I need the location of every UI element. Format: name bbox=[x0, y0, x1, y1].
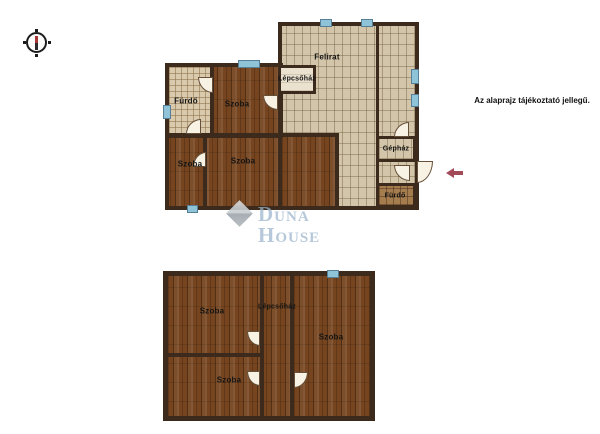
entrance-arrow-icon bbox=[446, 168, 463, 178]
window-marker bbox=[238, 60, 260, 68]
upper-left-bottom-walls bbox=[165, 133, 339, 210]
wall-right-strip bbox=[376, 26, 379, 207]
room-label-attic: Felirat bbox=[314, 53, 339, 62]
room-label-top-left: Szoba bbox=[200, 307, 225, 316]
disclaimer-text: Az alaprajz tájékoztató jellegű. bbox=[460, 96, 600, 105]
compass-tick-south bbox=[35, 54, 38, 57]
room-label-staircase: Lépcsőház bbox=[258, 304, 296, 311]
lower-outer-walls bbox=[163, 271, 375, 421]
compass-tick-north bbox=[35, 29, 38, 32]
watermark: Duna House bbox=[226, 200, 376, 230]
watermark-brand-text: Duna House bbox=[258, 204, 376, 246]
upper-floor-plan: Felirat Lépcsőház Fürdő Szoba Szoba Szob… bbox=[165, 15, 421, 215]
room-label-room-bottom-left: Szoba bbox=[178, 160, 203, 169]
compass-needle-south bbox=[35, 43, 38, 50]
entrance-door-swing bbox=[417, 161, 433, 183]
room-label-staircase: Lépcsőház bbox=[278, 76, 316, 83]
room-label-room-bottom-main: Szoba bbox=[231, 157, 256, 166]
compass-needle-north bbox=[35, 36, 38, 43]
duna-house-logo-icon bbox=[230, 204, 249, 223]
window-marker bbox=[361, 19, 373, 27]
floor-plan-page: { "disclaimer": "Az alaprajz tájékoztató… bbox=[0, 0, 600, 434]
compass-tick-east bbox=[48, 41, 51, 44]
room-label-bathroom-right: Fürdő bbox=[385, 193, 406, 200]
lower-floor-plan: Szoba Lépcsőház Szoba Szoba bbox=[163, 271, 375, 421]
room-label-bottom-left: Szoba bbox=[217, 376, 242, 385]
compass-tick-west bbox=[23, 41, 26, 44]
wall-between-bottom-rooms bbox=[203, 136, 207, 207]
window-marker bbox=[163, 105, 171, 119]
room-label-machine-room: Gépház bbox=[383, 146, 409, 153]
window-marker bbox=[411, 69, 419, 84]
wall-staircase-right bbox=[290, 276, 294, 416]
wall-staircase-left bbox=[260, 276, 264, 416]
arrow-shaft bbox=[454, 171, 463, 175]
window-marker bbox=[411, 94, 419, 107]
wall-between-left-rooms bbox=[168, 353, 264, 357]
window-marker bbox=[187, 205, 198, 213]
window-marker bbox=[320, 19, 332, 27]
arrow-head bbox=[446, 168, 454, 178]
window-marker bbox=[327, 270, 339, 278]
room-label-right: Szoba bbox=[319, 333, 344, 342]
room-label-bathroom-left: Fürdő bbox=[174, 97, 198, 106]
room-label-room-top: Szoba bbox=[225, 100, 250, 109]
compass-rose-icon bbox=[23, 29, 51, 57]
